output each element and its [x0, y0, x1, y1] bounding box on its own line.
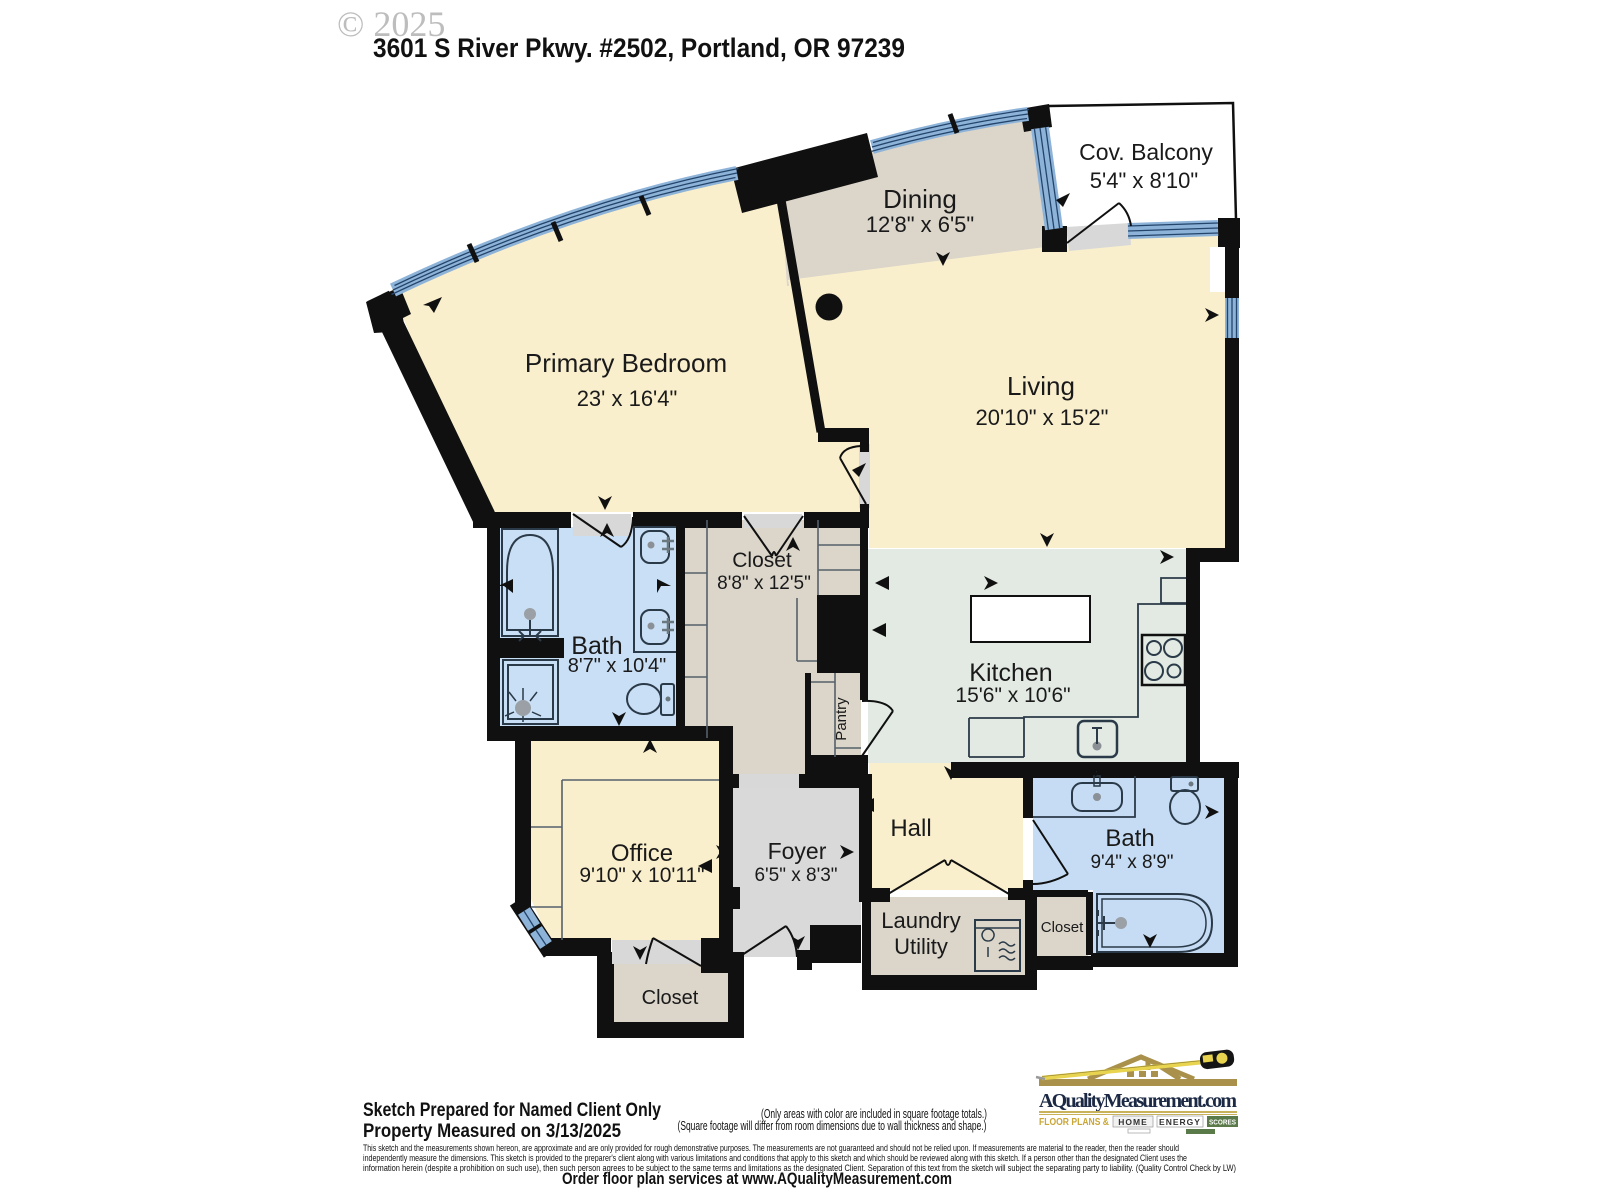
svg-text:23' x 16'4": 23' x 16'4" — [577, 386, 678, 411]
svg-text:15'6" x 10'6": 15'6" x 10'6" — [955, 684, 1070, 707]
svg-text:independently measure the dime: independently measure the dimensions. Th… — [363, 1153, 1187, 1163]
svg-text:Closet: Closet — [642, 987, 699, 1009]
svg-text:HOME: HOME — [1118, 1117, 1148, 1127]
svg-text:FLOOR PLANS &: FLOOR PLANS & — [1039, 1116, 1109, 1128]
svg-text:Property Measured on 3/13/2025: Property Measured on 3/13/2025 — [363, 1121, 621, 1142]
svg-text:Closet: Closet — [1041, 919, 1084, 936]
svg-text:Sketch Prepared for Named Clie: Sketch Prepared for Named Client Only — [363, 1100, 661, 1121]
svg-text:9'4" x 8'9": 9'4" x 8'9" — [1090, 852, 1173, 873]
svg-text:9'10" x 10'11": 9'10" x 10'11" — [579, 864, 704, 887]
svg-text:Hall: Hall — [890, 815, 931, 842]
svg-text:8'8" x 12'5": 8'8" x 12'5" — [717, 573, 811, 594]
svg-text:(Square footage will differ fr: (Square footage will differ from room di… — [678, 1119, 987, 1133]
svg-text:Order floor plan services at w: Order floor plan services at www.AQualit… — [562, 1169, 952, 1188]
svg-text:Pantry: Pantry — [833, 697, 850, 741]
svg-text:AQualityMeasurement.com: AQualityMeasurement.com — [1039, 1090, 1237, 1112]
svg-text:Utility: Utility — [894, 934, 948, 959]
svg-text:5'4" x 8'10": 5'4" x 8'10" — [1090, 168, 1198, 193]
svg-text:Closet: Closet — [732, 549, 792, 572]
svg-text:Office: Office — [611, 840, 673, 867]
svg-text:8'7" x 10'4": 8'7" x 10'4" — [568, 655, 667, 677]
svg-text:This sketch and the measuremen: This sketch and the measurements shown h… — [363, 1143, 1179, 1153]
svg-text:Bath: Bath — [1105, 825, 1154, 852]
svg-text:12'8" x 6'5": 12'8" x 6'5" — [866, 212, 974, 237]
svg-text:6'5" x 8'3": 6'5" x 8'3" — [754, 865, 837, 886]
svg-text:Primary Bedroom: Primary Bedroom — [525, 348, 727, 378]
svg-text:Laundry: Laundry — [881, 908, 961, 933]
svg-text:ENERGY: ENERGY — [1159, 1117, 1201, 1127]
svg-text:Cov. Balcony: Cov. Balcony — [1079, 139, 1213, 165]
svg-text:Living: Living — [1007, 371, 1075, 401]
svg-text:Kitchen: Kitchen — [969, 659, 1052, 687]
svg-text:Dining: Dining — [883, 184, 957, 214]
svg-text:3601 S River Pkwy. #2502, Port: 3601 S River Pkwy. #2502, Portland, OR 9… — [373, 33, 905, 63]
svg-text:SCORES: SCORES — [1209, 1118, 1236, 1127]
svg-text:Foyer: Foyer — [768, 838, 827, 864]
svg-text:20'10" x 15'2": 20'10" x 15'2" — [976, 405, 1109, 430]
